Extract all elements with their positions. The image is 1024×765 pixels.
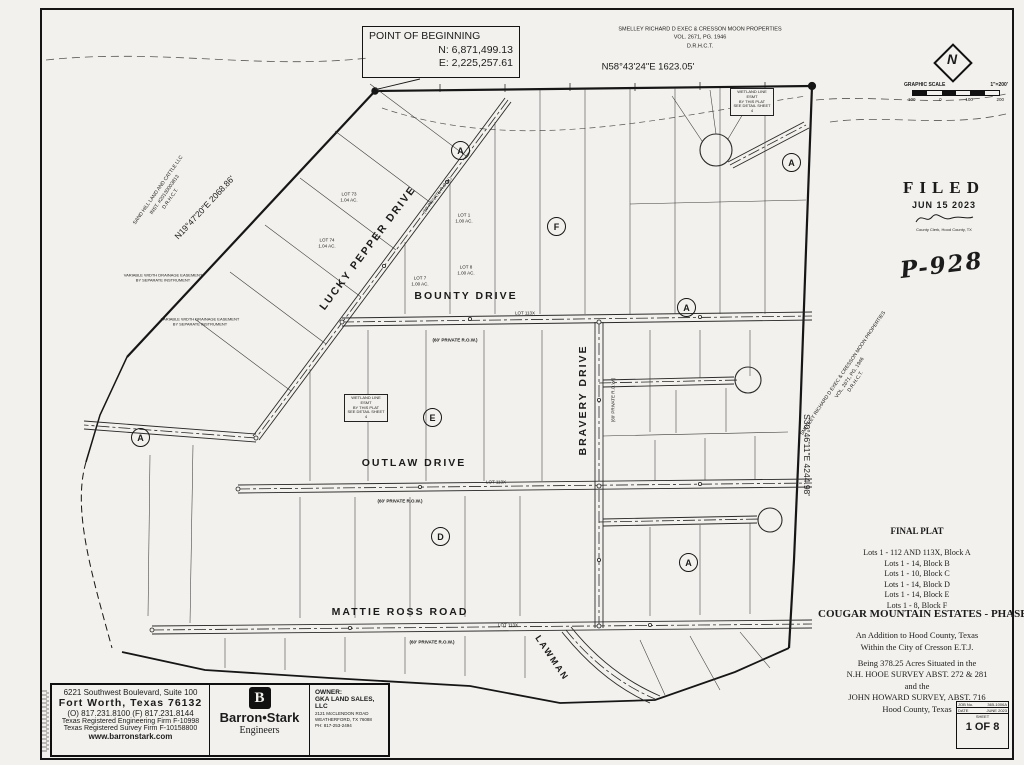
job-label: JOB No. xyxy=(958,702,973,707)
lot-label: LOT 7 1.00 AC. xyxy=(411,275,428,286)
firm-phones: (O) 817.231.8100 (F) 817.231.8144 xyxy=(56,709,205,718)
filed-clerk: County Clerk, Hood County, TX xyxy=(884,227,1004,232)
firm-address2: Fort Worth, Texas 76132 xyxy=(56,697,205,709)
filed-date: JUN 15 2023 xyxy=(884,200,1004,210)
block-label-circle: E xyxy=(423,408,442,427)
creek-line xyxy=(81,462,112,648)
note-line: BY SEPARATE INSTRUMENT xyxy=(161,322,240,327)
note-line: BY SEPARATE INSTRUMENT xyxy=(124,278,203,283)
detail-note: WETLAND LINE ESMT BY THIS PLAT SEE DETAI… xyxy=(730,88,774,116)
road-lot-bounty: LOT 113X xyxy=(515,310,535,315)
filed-title: FILED xyxy=(884,178,1004,198)
pob-point xyxy=(372,88,378,94)
filed-stamp: FILED JUN 15 2023 County Clerk, Hood Cou… xyxy=(884,178,1004,232)
firm-address-cell: 6221 Southwest Boulevard, Suite 100 Fort… xyxy=(52,685,210,755)
lot-lines xyxy=(148,84,806,695)
street-bravery-row: (60' PRIVATE R.O.W.) xyxy=(610,378,615,422)
lot-number: LOT 8 xyxy=(457,264,474,270)
owner-label: OWNER: xyxy=(315,689,383,696)
date-value: JUNE 2023 xyxy=(987,708,1007,713)
lot-label: LOT 73 1.04 AC. xyxy=(340,191,357,202)
street-outlaw-row: (60' PRIVATE R.O.W.) xyxy=(378,498,423,503)
plat-sheet: POINT OF BEGINNING N: 6,871,499.13 E: 2,… xyxy=(0,0,1024,765)
clerk-signature xyxy=(912,210,976,226)
street-mattie-ross: MATTIE ROSS ROAD xyxy=(332,606,469,618)
lot-number: LOT 74 xyxy=(318,237,335,243)
scale-bar xyxy=(912,90,1000,96)
lot-summary-line: Lots 1 - 14, Block B xyxy=(818,559,1016,570)
owner-address2: WEATHERFORD, TX 76088 xyxy=(315,717,383,722)
lot-area: 1.04 AC. xyxy=(318,243,335,249)
graphic-scale: GRAPHIC SCALE 1"=200' 100 0 100 200 xyxy=(904,82,1008,102)
owner-phone: PH: 817-253-2494 xyxy=(315,723,383,728)
contour-dash xyxy=(830,114,1006,122)
addition-line: Within the City of Cresson E.T.J. xyxy=(818,642,1016,654)
street-bravery: BRAVERY DRIVE xyxy=(577,345,589,456)
note-line: SEE DETAIL SHEET 4 xyxy=(347,410,385,420)
owner-address1: 2121 McCLENDON ROAD xyxy=(315,711,383,716)
block-label-circle: A xyxy=(131,428,150,447)
firm-website: www.barronstark.com xyxy=(56,732,205,741)
road-lot-mattie-ross: LOT 113X xyxy=(498,622,518,627)
lot-number: LOT 7 xyxy=(411,275,428,281)
detail-note: WETLAND LINE ESMT BY THIS PLAT SEE DETAI… xyxy=(344,394,388,422)
street-outlaw: OUTLAW DRIVE xyxy=(362,457,467,469)
pob-northing: N: 6,871,499.13 xyxy=(369,44,513,58)
block-label-circle: D xyxy=(431,527,450,546)
block-label-circle: F xyxy=(547,217,566,236)
addition-line: An Addition to Hood County, Texas xyxy=(818,630,1016,642)
graphic-scale-title: GRAPHIC SCALE xyxy=(904,82,945,88)
adjoiner-north-name: SMELLEY RICHARD D EXEC & CRESSON MOON PR… xyxy=(618,26,781,34)
scale-tick: 200 xyxy=(996,97,1004,102)
graphic-scale-ratio: 1"=200' xyxy=(990,82,1008,88)
lot-summary-line: Lots 1 - 14, Block D xyxy=(818,580,1016,591)
north-arrow-letter: N xyxy=(932,51,972,67)
job-sheet-table: JOB No. 365-1006A DATE JUNE 2023 SHEET 1… xyxy=(956,701,1009,749)
firm-address1: 6221 Southwest Boulevard, Suite 100 xyxy=(56,688,205,697)
adjoiner-north-vol: VOL. 2671, PG. 1946 xyxy=(618,34,781,42)
block-label-circle: A xyxy=(451,141,470,160)
street-bounty: BOUNTY DRIVE xyxy=(414,290,517,302)
boundary-west xyxy=(86,357,127,462)
owner-cell: OWNER: GKA LAND SALES, LLC 2121 McCLENDO… xyxy=(310,685,388,755)
lot-area: 1.00 AC. xyxy=(455,218,472,224)
note-line: SEE DETAIL SHEET 4 xyxy=(733,104,771,114)
lot-summary-line: Lots 1 - 112 AND 113X, Block A xyxy=(818,548,1016,559)
pob-leader xyxy=(378,79,420,89)
firm-survey-registration: Texas Registered Survey Firm F-10158800 xyxy=(56,725,205,732)
street-mattie-ross-row: (60' PRIVATE R.O.W.) xyxy=(410,639,455,644)
description-line: N.H. HOOE SURVEY ABST. 272 & 281 xyxy=(818,669,1016,680)
job-value: 365-1006A xyxy=(987,702,1007,707)
firm-logo-sub: Engineers xyxy=(210,725,309,736)
cul-de-sacs xyxy=(700,134,782,532)
scale-tick: 100 xyxy=(965,97,973,102)
adjoiner-north: SMELLEY RICHARD D EXEC & CRESSON MOON PR… xyxy=(618,26,781,51)
firm-logo-name: Barron•Stark xyxy=(210,710,309,725)
scale-tick: 100 xyxy=(908,97,916,102)
lot-area: 1.04 AC. xyxy=(340,197,357,203)
lot-area: 1.00 AC. xyxy=(457,270,474,276)
lot-number: LOT 1 xyxy=(455,212,472,218)
date-label: DATE xyxy=(958,708,968,713)
firm-logo-cell: B Barron•Stark Engineers xyxy=(210,685,310,755)
lot-area: 1.00 AC. xyxy=(411,281,428,287)
point-of-beginning-box: POINT OF BEGINNING N: 6,871,499.13 E: 2,… xyxy=(362,26,520,78)
lot-summary-line: Lots 1 - 14, Block E xyxy=(818,590,1016,601)
description-line: Being 378.25 Acres Situated in the xyxy=(818,658,1016,669)
north-arrow-icon: N xyxy=(932,42,972,82)
barron-stark-logo-icon: B xyxy=(249,687,271,709)
addition-text: An Addition to Hood County, Texas Within… xyxy=(818,630,1016,654)
scale-tick: 0 xyxy=(939,97,942,102)
street-bounty-row: (60' PRIVATE R.O.W.) xyxy=(433,337,478,342)
final-plat-heading: FINAL PLAT xyxy=(818,526,1016,536)
road-lot-outlaw: LOT 113X xyxy=(486,479,506,484)
sheet-number: 1 OF 8 xyxy=(957,721,1008,733)
lot-summary-line: Lots 1 - 10, Block C xyxy=(818,569,1016,580)
description-line: and the xyxy=(818,681,1016,692)
plat-title: COUGAR MOUNTAIN ESTATES - PHASE 1 xyxy=(818,608,1016,620)
bearing-north-line: N58°43'24"E 1623.05' xyxy=(602,63,695,74)
corner-point xyxy=(808,82,815,89)
drainage-note: VARIABLE WIDTH DRAINAGE EASEMENT BY SEPA… xyxy=(124,273,203,282)
lot-number: LOT 73 xyxy=(340,191,357,197)
lot-label: LOT 1 1.00 AC. xyxy=(455,212,472,223)
lot-summary: Lots 1 - 112 AND 113X, Block A Lots 1 - … xyxy=(818,548,1016,611)
pob-title: POINT OF BEGINNING xyxy=(369,30,513,44)
block-label-circle: A xyxy=(679,553,698,572)
block-label-circle: A xyxy=(677,298,696,317)
owner-name: GKA LAND SALES, LLC xyxy=(315,696,383,710)
sheet-label: SHEET xyxy=(957,714,1008,719)
lot-label: LOT 74 1.04 AC. xyxy=(318,237,335,248)
pob-easting: E: 2,225,257.61 xyxy=(369,57,513,71)
firm-eng-registration: Texas Registered Engineering Firm F-1099… xyxy=(56,718,205,725)
drainage-note: VARIABLE WIDTH DRAINAGE EASEMENT BY SEPA… xyxy=(161,317,240,326)
contour-dash xyxy=(46,56,368,61)
firm-title-block: 6221 Southwest Boulevard, Suite 100 Fort… xyxy=(50,683,390,757)
block-label-circle: A xyxy=(782,153,801,172)
adjoiner-north-rec: D.R.H.C.T. xyxy=(618,42,781,50)
lot-label: LOT 8 1.00 AC. xyxy=(457,264,474,275)
